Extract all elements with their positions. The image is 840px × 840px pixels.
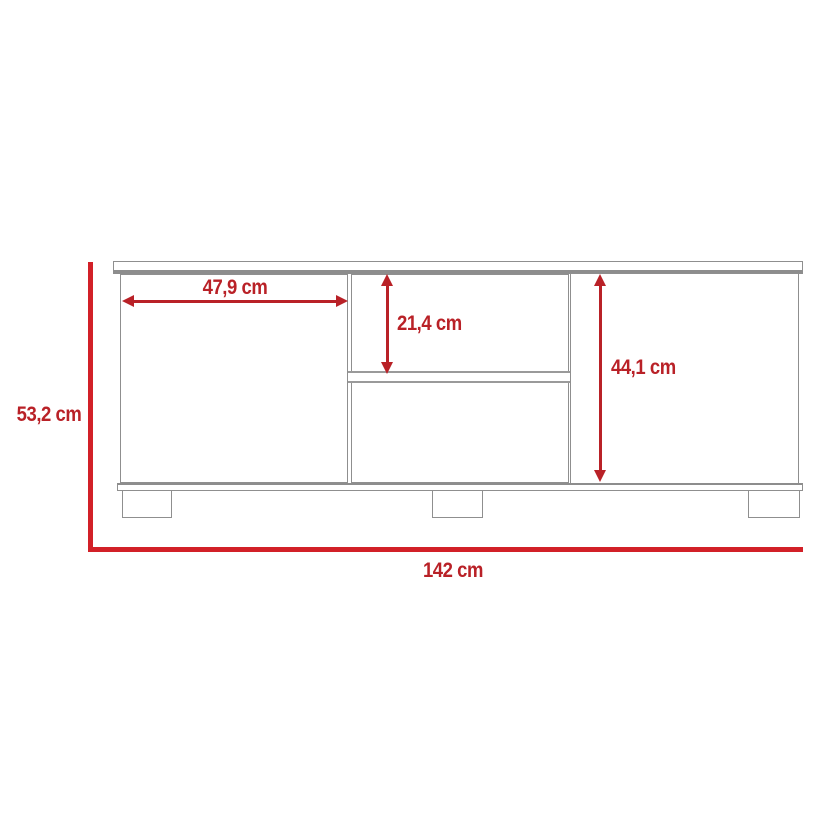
middle-compartment-height-label: 21,4 cm xyxy=(397,313,462,334)
arrow-down-icon xyxy=(594,470,606,482)
left-leg xyxy=(122,490,172,518)
left-door-width-label: 47,9 cm xyxy=(160,277,310,298)
arrow-right-icon xyxy=(336,295,348,307)
overall-width-label: 142 cm xyxy=(391,560,514,581)
overall-height-label: 53,2 cm xyxy=(17,404,80,425)
right-door xyxy=(570,273,799,484)
middle-leg xyxy=(432,490,483,518)
right-leg xyxy=(748,490,800,518)
furniture-dimension-diagram: 47,9 cm 21,4 cm 44,1 cm 53,2 cm 142 cm xyxy=(0,0,840,840)
arrow-down-icon xyxy=(381,362,393,374)
right-door-height-label: 44,1 cm xyxy=(611,357,676,378)
overall-height-line xyxy=(88,262,93,552)
overall-width-line xyxy=(88,547,803,552)
left-door xyxy=(120,274,348,483)
